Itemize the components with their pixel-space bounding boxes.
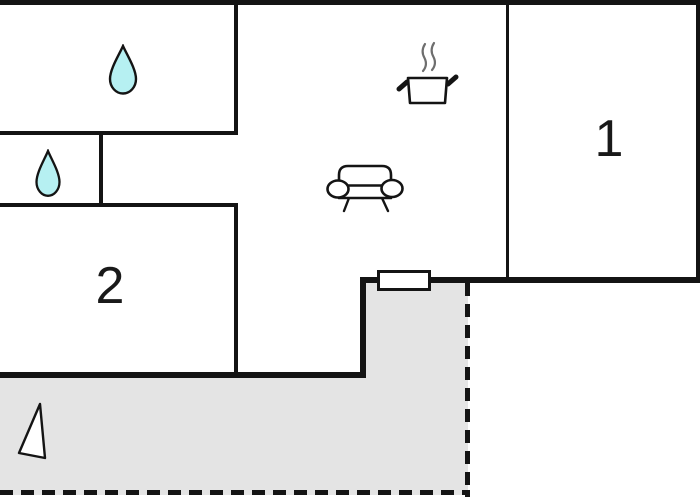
floor-plan: 1 2 [0, 0, 700, 500]
steam-line [432, 43, 435, 70]
water-drop-icon [34, 149, 62, 199]
wall-horizontal-south-lower [0, 372, 366, 378]
steam-line [423, 44, 426, 71]
north-arrow-icon [14, 399, 52, 463]
wall-vertical-small-bath [99, 131, 103, 207]
terrace-dashed-border-right [465, 283, 470, 497]
water-drop-icon [107, 44, 139, 97]
terrace-dashed-border-bottom [0, 490, 470, 495]
room-kitchen-living [238, 5, 506, 277]
terrace-area-upper [366, 283, 468, 495]
terrace-area-lower [0, 378, 366, 495]
wall-right [696, 0, 700, 283]
cooking-pot-icon [395, 40, 460, 106]
room-2-label: 2 [80, 259, 140, 313]
sofa-icon [325, 162, 405, 214]
room-1-label: 1 [579, 112, 639, 166]
wall-vertical-notch [360, 277, 366, 378]
